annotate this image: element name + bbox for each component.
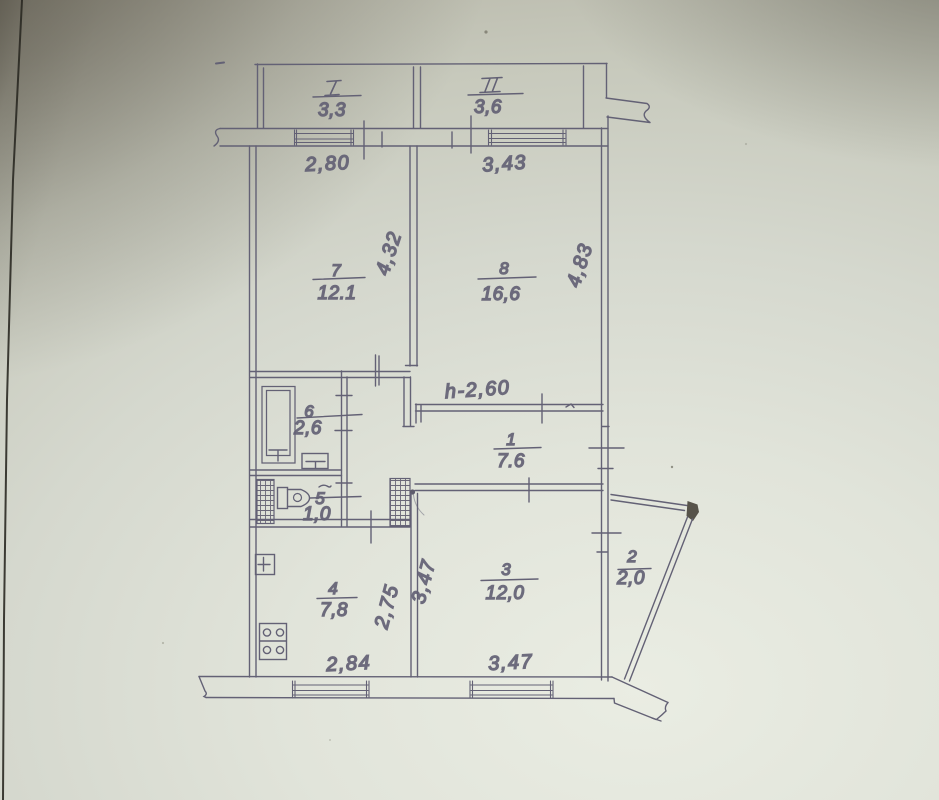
svg-text:h-2,60: h-2,60 (444, 377, 511, 404)
svg-text:12,0: 12,0 (486, 583, 525, 604)
svg-text:4,32: 4,32 (372, 228, 407, 278)
svg-text:1,0: 1,0 (303, 504, 331, 525)
svg-text:3,47: 3,47 (488, 651, 534, 675)
svg-text:2,75: 2,75 (371, 582, 404, 632)
svg-text:16,6: 16,6 (482, 284, 521, 305)
svg-text:3,3: 3,3 (318, 100, 346, 121)
svg-text:1: 1 (506, 430, 515, 449)
svg-text:2,80: 2,80 (304, 152, 351, 176)
svg-text:12.1: 12.1 (318, 283, 357, 304)
svg-text:2,6: 2,6 (293, 418, 322, 439)
svg-text:3,43: 3,43 (481, 151, 527, 176)
svg-text:8: 8 (499, 259, 509, 278)
svg-text:4,83: 4,83 (563, 240, 598, 290)
svg-text:2,84: 2,84 (325, 652, 372, 676)
svg-text:2,0: 2,0 (616, 568, 645, 589)
svg-text:7,8: 7,8 (320, 600, 348, 621)
svg-text:3,47: 3,47 (408, 557, 441, 606)
svg-text:7: 7 (331, 261, 341, 280)
svg-text:4: 4 (328, 579, 337, 598)
svg-text:2: 2 (626, 547, 637, 566)
svg-text:7.6: 7.6 (497, 451, 525, 472)
svg-text:3,6: 3,6 (474, 97, 502, 118)
svg-text:3: 3 (501, 560, 511, 579)
